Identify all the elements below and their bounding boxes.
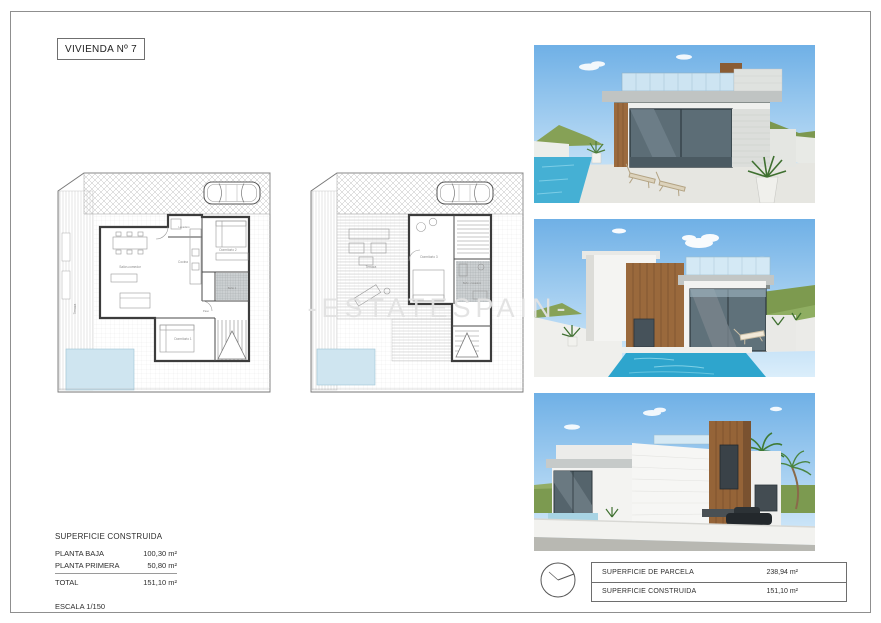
- table-row-label: SUPERFICIE CONSTRUIDA: [592, 588, 766, 595]
- roof-slab-left: [546, 459, 638, 468]
- wood-pillar: [614, 103, 628, 167]
- corner-glass: [690, 289, 766, 351]
- roof-parapet: [734, 69, 782, 91]
- pool: [608, 353, 766, 377]
- car-topview-icon: [204, 182, 260, 204]
- scale-note: ESCALA 1/150: [55, 602, 177, 611]
- wing-window: [755, 485, 777, 511]
- room-label-paso: Paso: [203, 309, 210, 313]
- room-label-bano2: Baño + lavadero: [463, 282, 482, 285]
- car-topview-icon: [437, 182, 493, 204]
- summary-divider: [55, 573, 177, 574]
- drawing-sheet: VIVIENDA Nº 7 -ESTATESPAIN-: [0, 0, 881, 623]
- table-row-value: 238,94 m²: [766, 569, 846, 576]
- room-label-terraza: Terraza: [73, 303, 77, 314]
- house: [602, 63, 796, 167]
- plant-pot: [568, 337, 577, 346]
- planter: [62, 271, 70, 299]
- drawing-title: VIVIENDA Nº 7: [65, 44, 137, 55]
- side-wing: [770, 129, 796, 167]
- roof-slab: [602, 91, 782, 102]
- floor-plan-ground: Salón-comedor Cocina Lavadero Dormitorio…: [56, 171, 273, 394]
- summary-total-label: TOTAL: [55, 578, 78, 587]
- table-row-value: 151,10 m²: [766, 588, 846, 595]
- render-corner-view: [534, 219, 815, 377]
- room-label-dorm1: Dormitorio 1: [174, 337, 192, 341]
- room-label-bano1: Baño 1: [228, 286, 237, 290]
- driveway-paving: [337, 173, 523, 214]
- tower-window: [720, 445, 738, 489]
- pool-plan: [66, 349, 134, 390]
- table-row: SUPERFICIE DE PARCELA 238,94 m²: [592, 563, 846, 582]
- main-wall: [632, 443, 709, 533]
- room-label-lavadero: Lavadero: [178, 225, 190, 229]
- table-row: SUPERFICIE CONSTRUIDA 151,10 m²: [592, 582, 846, 602]
- summary-row-label: PLANTA PRIMERA: [55, 561, 119, 570]
- room-label-salon: Salón-comedor: [119, 265, 142, 269]
- pool-edge: [622, 347, 752, 353]
- room-label-dorm2: Dormitorio 2: [219, 248, 237, 252]
- render-front-view: [534, 45, 815, 203]
- planter: [62, 233, 70, 261]
- floor-plan-first: Terraza Dormitorio 3 Baño + lavadero: [309, 171, 526, 394]
- room-label-terraza: Terraza: [366, 265, 377, 269]
- glass-door: [634, 319, 654, 347]
- room-label-cocina: Cocina: [178, 260, 188, 264]
- summary-total-value: 151,10 m²: [143, 578, 177, 587]
- summary-row: PLANTA BAJA 100,30 m²: [55, 549, 177, 558]
- render-side-view: [534, 393, 815, 551]
- glass-sliding-doors: [630, 109, 732, 167]
- roof-glass-railing: [654, 435, 710, 444]
- summary-row-label: PLANTA BAJA: [55, 549, 104, 558]
- room-label-dorm3: Dormitorio 3: [420, 255, 438, 259]
- parcel-area-table: SUPERFICIE DE PARCELA 238,94 m² SUPERFIC…: [591, 562, 847, 602]
- drawing-title-box: VIVIENDA Nº 7: [57, 38, 145, 60]
- table-row-label: SUPERFICIE DE PARCELA: [592, 569, 766, 576]
- summary-title: SUPERFICIE CONSTRUIDA: [55, 532, 177, 541]
- pool-plan: [317, 349, 375, 385]
- north-indicator-icon: [539, 561, 577, 599]
- area-summary: SUPERFICIE CONSTRUIDA PLANTA BAJA 100,30…: [55, 532, 177, 611]
- summary-row-value: 100,30 m²: [143, 549, 177, 558]
- summary-total-row: TOTAL 151,10 m²: [55, 578, 177, 587]
- parapet-left: [556, 445, 634, 459]
- summary-row: PLANTA PRIMERA 50,80 m²: [55, 561, 177, 570]
- summary-row-value: 50,80 m²: [147, 561, 177, 570]
